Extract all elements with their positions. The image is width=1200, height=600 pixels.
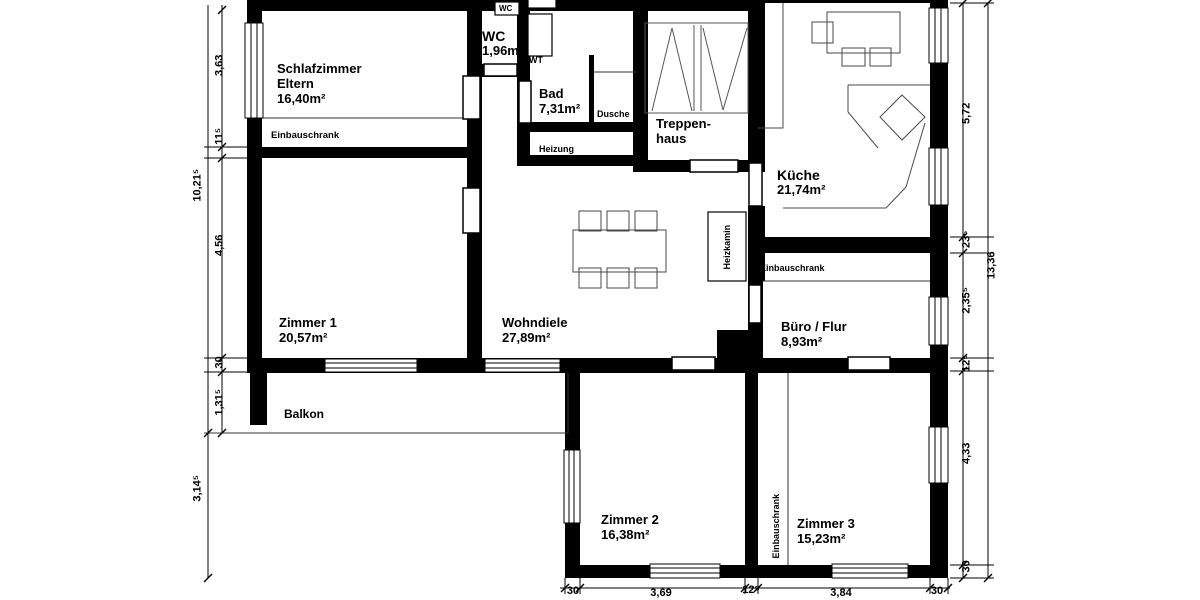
room-label-treppenhaus: Treppen- haus (656, 117, 711, 147)
window-zimmer2-left (564, 450, 580, 523)
door-zimmer1 (463, 188, 480, 233)
room-label-zimmer1: Zimmer 1 20,57m² (279, 316, 337, 346)
einbauschrank-label-schlafzimmer: Einbauschrank (271, 131, 339, 142)
dim-left-1: 3,63 (214, 35, 227, 95)
room-label-balkon: Balkon (284, 408, 324, 422)
window-kueche-1 (929, 8, 948, 63)
dim-bottom-4: 3,84 (811, 587, 871, 600)
dim-right-1: 5,72 (961, 83, 974, 143)
dim-left-outer-upper: 10,21⁵ (192, 155, 205, 215)
dim-left-outer-lower: 3,14⁵ (192, 458, 205, 518)
floorplan-drawing (0, 0, 1200, 600)
door-kueche (749, 163, 762, 206)
dim-left-3: 4,56 (214, 215, 227, 275)
dim-bottom-2: 3,69 (631, 587, 691, 600)
window-wohndiele-balkon (485, 359, 560, 372)
stairs-icon (645, 23, 748, 113)
wc-cistern-label: WC (499, 4, 512, 13)
dim-bottom-5: 30 (907, 585, 967, 598)
room-label-schlafzimmer: Schlafzimmer Eltern 16,40m² (277, 62, 362, 107)
window-zimmer2-bottom (650, 564, 720, 578)
window-zimmer3-bottom (832, 564, 908, 578)
heizkamin-label: Heizkamin (722, 212, 732, 282)
dim-right-outer-total: 13,36 (986, 235, 999, 295)
room-label-zimmer2: Zimmer 2 16,38m² (601, 513, 659, 543)
door-zimmer2 (672, 357, 715, 370)
dim-right-4: 12⁵ (961, 333, 974, 393)
wt-box (528, 14, 552, 56)
dim-left-5: 1,31⁵ (214, 372, 227, 432)
dining-table-icon (573, 211, 666, 288)
einbauschrank-label-buero: Einbauschrank (760, 263, 825, 273)
dim-left-2: 11⁵ (214, 106, 227, 166)
room-label-kueche: Küche 21,74m² (777, 167, 825, 198)
window-zimmer3-right (929, 427, 948, 483)
dusche-label: Dusche (597, 109, 630, 119)
floorplan-canvas: Schlafzimmer Eltern 16,40m² WC 1,96m² Ba… (0, 0, 1200, 600)
room-label-zimmer3: Zimmer 3 15,23m² (797, 517, 855, 547)
door-treppenhaus (690, 160, 738, 172)
room-label-bad: Bad 7,31m² (539, 87, 580, 117)
window-buero (929, 297, 948, 345)
room-label-wohndiele: Wohndiele 27,89m² (502, 316, 567, 346)
wt-label: WT (529, 55, 543, 65)
window-zimmer1-balkon (325, 359, 417, 372)
dim-right-5: 4,33 (961, 423, 974, 483)
room-label-wc: WC 1,96m² (482, 28, 523, 59)
einbauschrank-label-zimmer3: Einbauschrank (771, 486, 781, 566)
door-buero (749, 285, 761, 323)
dim-right-2: 23⁵ (961, 209, 974, 269)
dim-right-3: 2,35⁵ (961, 270, 974, 330)
dim-bottom-3: 12⁵ (721, 584, 781, 597)
dim-bottom-1: 30 (543, 585, 603, 598)
door-schlafzimmer (463, 76, 480, 119)
room-label-buero: Büro / Flur 8,93m² (781, 320, 847, 350)
window-schlafzimmer-left (245, 23, 263, 118)
window-kueche-2 (929, 148, 948, 205)
door-bad (519, 81, 531, 123)
door-zimmer3 (848, 357, 890, 370)
door-wc (484, 64, 517, 76)
clipped-fixture-box (528, 0, 556, 8)
heizung-label: Heizung (539, 144, 574, 154)
